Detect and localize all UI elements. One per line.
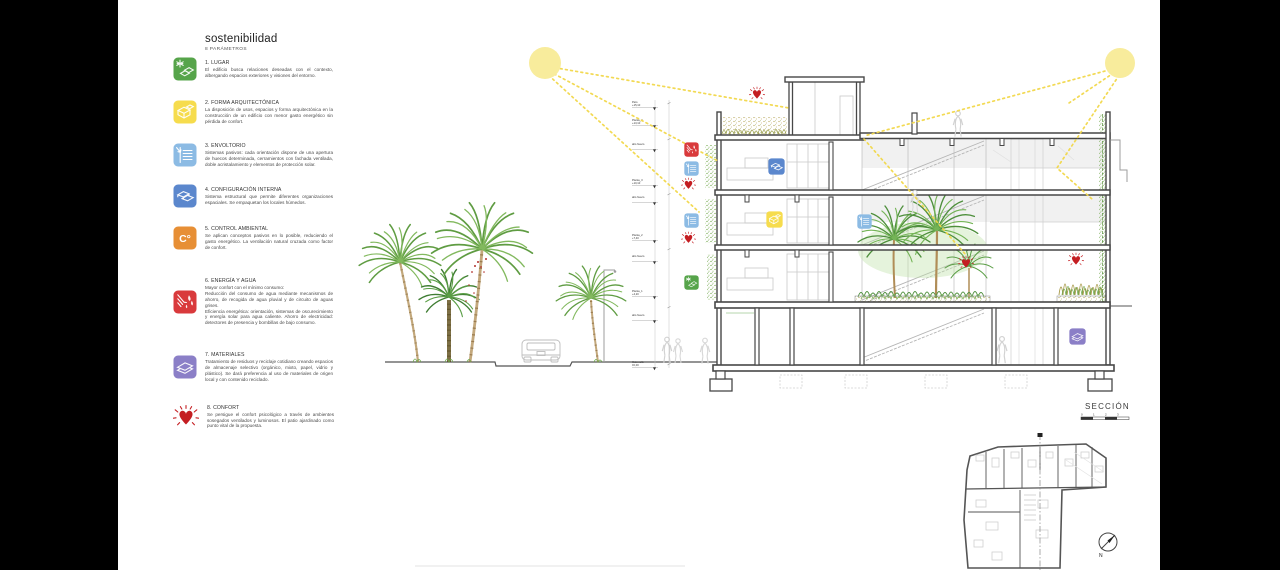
param-desc: La disposición de usos, espacios y forma… [205,107,333,125]
water-energy-icon [684,142,698,156]
sun-icon [1105,48,1135,78]
param-lugar: 1. LUGAR El edificio busca relaciones de… [173,57,334,81]
param-envoltorio: 3. ENVOLTORIO Sistemas pasivos: cada ori… [173,143,334,168]
lamp-post [604,270,616,362]
svg-text:+4,20: +4,20 [632,292,639,296]
pedestrian [674,339,683,363]
param-heading: 6. ENERGÍA Y AGUA [205,278,333,284]
svg-text:alto hueco: alto hueco [632,313,645,317]
svg-text:±0,00: ±0,00 [632,363,639,367]
svg-text:3: 3 [1117,413,1119,417]
board-title: sostenibilidad 8 PARÁMETROS [205,33,365,52]
foundation-pads [780,375,1027,388]
site-icon [173,57,197,81]
param-desc: Se aplican conceptos pasivos en lo posib… [205,233,333,251]
heart-icon [1068,253,1084,265]
sun-icon [529,47,561,79]
right-planter [1057,284,1106,303]
param-heading: 4. CONFIGURACIÓN INTERNA [205,187,333,193]
level-labels: Peto +15,10 Planta_4 +13,10 alto hueco P… [632,100,658,370]
green-wall [1099,114,1106,302]
materials-icon [173,355,197,379]
param-heading: 2. FORMA ARQUITECTÓNICA [205,100,333,106]
north-arrow: N [1099,533,1117,559]
level-markers: Peto +15,10 Planta_4 +13,10 alto hueco P… [632,100,671,370]
param-heading: 8. CONFORT [207,405,334,411]
svg-text:alto hueco: alto hueco [632,254,645,258]
green-roof [721,117,787,135]
elevator-shaft [990,139,1106,365]
figure-basement [997,337,1007,364]
section-cut-marker [1038,433,1043,437]
param-heading: 3. ENVOLTORIO [205,143,333,149]
volumes-icon [768,158,784,174]
param-configuracion: 4. CONFIGURACIÓN INTERNA Sistema estruct… [173,184,334,208]
svg-text:+13,10: +13,10 [632,121,641,125]
param-desc: Mayor confort con el mínimo consumo: Red… [205,285,333,326]
site-icon [684,275,698,289]
cube-icon [173,100,197,124]
louvers-icon [684,161,698,175]
north-label: N [1099,553,1103,559]
floor-plan: N [964,433,1117,570]
pedestrian [700,338,709,363]
volumes-icon [173,184,197,208]
param-heading: 7. MATERIALES [205,352,333,358]
street-context [359,195,717,366]
section-label: SECCIÓN [1085,402,1130,411]
param-forma: 2. FORMA ARQUITECTÓNICA La disposición d… [173,100,334,125]
svg-text:alto hueco: alto hueco [632,195,645,199]
svg-text:2: 2 [1105,413,1107,417]
board-title-sub: 8 PARÁMETROS [205,47,365,52]
louvers-icon [684,213,698,227]
svg-text:alto hueco: alto hueco [632,142,645,146]
param-desc: Sistemas pasivos: cada orientación dispo… [205,150,333,168]
facade-green-strips [705,145,716,300]
svg-text:+15,10: +15,10 [632,103,641,107]
param-confort: 8. CONFORT Se persigue el confort psicol… [173,404,334,430]
param-desc: El edificio busca relaciones deseadas co… [205,67,333,79]
heart-icon [681,232,696,243]
param-heading: 5. CONTROL AMBIENTAL [205,226,333,232]
water-energy-icon [173,290,197,314]
pedestrian [662,337,671,362]
param-heading: 1. LUGAR [205,60,333,66]
param-desc: Sistema estructural que permite diferent… [205,194,333,206]
heart-icon [749,87,765,99]
svg-text:+10,10: +10,10 [632,181,641,185]
cube-icon [766,211,782,227]
building-section [705,77,1132,391]
section-title-block: SECCIÓN 0 1 2 3 [1081,402,1130,420]
param-desc: Tratamiento de residuos y reciclaje coti… [205,359,333,383]
param-energia: 6. ENERGÍA Y AGUA Mayor confort con el m… [173,278,334,326]
param-desc: Se persigue el confort psicológico a tra… [207,412,334,430]
materials-icon [1069,328,1085,344]
heart-icon [173,404,199,430]
car [522,340,560,362]
scale-bar [1081,417,1129,420]
param-control: 5. CONTROL AMBIENTAL Se aplican concepto… [173,226,334,251]
svg-text:1: 1 [1093,413,1095,417]
param-materiales: 7. MATERIALES Tratamiento de residuos y … [173,352,334,383]
svg-text:+7,40: +7,40 [632,236,639,240]
heart-icon [681,178,696,189]
louvers-icon [173,143,197,167]
louvers-icon [857,214,871,228]
street-palms [359,195,626,362]
svg-text:0: 0 [1081,413,1083,417]
presentation-board: C° [118,0,1160,570]
board-title-main: sostenibilidad [205,33,365,45]
celsius-icon [173,226,197,250]
